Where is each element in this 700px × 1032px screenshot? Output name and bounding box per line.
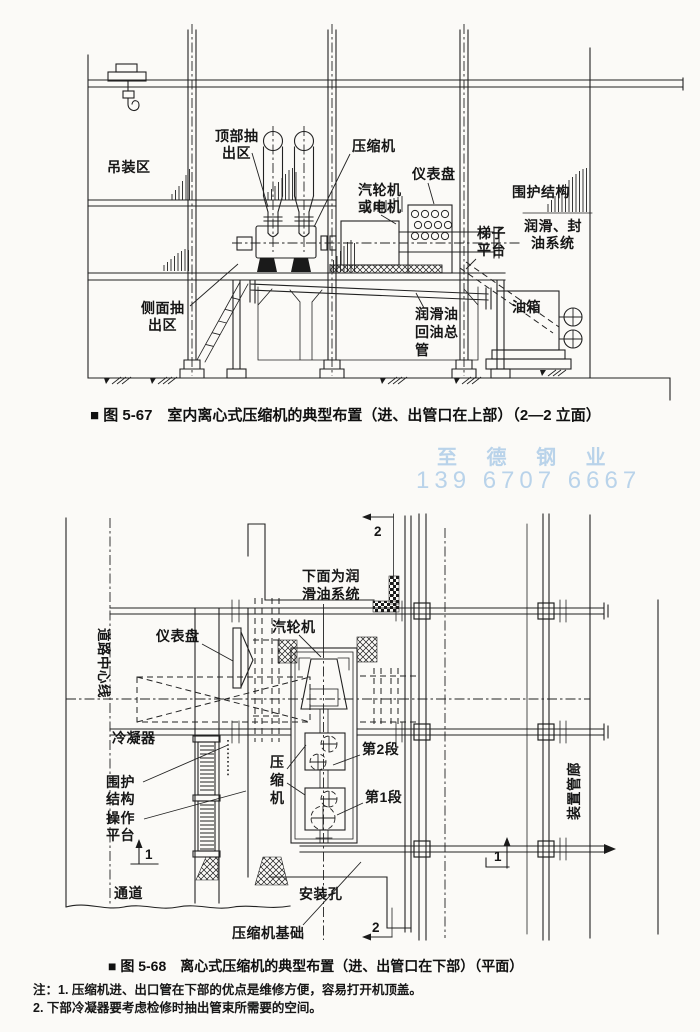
label-stage-1: 第1段 [365,789,402,805]
label-condenser: 冷凝器 [112,730,156,746]
column [320,24,344,378]
suction-nozzle [264,126,283,252]
label-operating-platform: 操作 [106,810,135,826]
label-lube-seal-system: 油系统 [531,235,575,251]
note-line-2: 2. 下部冷凝器要考虑检修时抽出管束所需要的空间。 [33,997,322,1016]
label-stage-2: 第2段 [362,741,399,757]
label-side-extraction: 侧面抽 [141,300,185,316]
instrument-panel-plan [233,628,253,688]
label-pipe-rack: 装置管廊 [566,762,582,821]
label-hoisting-area: 吊装区 [107,159,151,175]
label-top-extraction: 顶部抽 [215,128,259,144]
pedestal [330,265,442,273]
column [180,24,204,378]
label-enclosure: 结构 [106,791,135,807]
ground-hatch [104,370,566,384]
label-compressor: 机 [270,790,285,806]
watermark-company: 至 德 钢 业 [437,441,618,470]
label-lube-system-below: 滑油系统 [302,586,360,602]
label-compressor: 缩 [270,772,285,788]
label-passage: 通道 [114,885,143,901]
label-lube-system-below: 下面为润 [302,568,360,584]
label-steam-turbine: 汽轮机 [272,619,316,635]
label-turbine-or-motor: 或电机 [358,199,402,215]
scanned-book-page: 吊装区 顶部抽 出区 压缩机 汽轮机 或电机 仪表盘 围护结构 润滑、封 油系统… [0,0,700,1032]
figure-5-68-drawing: 2 [0,510,700,960]
label-ladder-platform: 梯子 [477,225,506,241]
label-oil-return: 回油总 [415,324,459,340]
condenser-box [137,677,310,722]
watermark-phone: 139 6707 6667 [416,467,641,495]
note-line-1: 注：1. 压缩机进、出口管在下部的优点是维修方便，容易打开机顶盖。 [33,979,422,998]
wavy-break-line [66,905,290,908]
structural-grid [66,514,658,940]
label-ladder-platform: 平台 [477,242,506,258]
label-enclosure: 围护 [106,774,135,790]
label-side-extraction: 出区 [148,317,177,333]
label-top-extraction: 出区 [222,145,251,161]
turbine-plan [301,659,347,709]
label-compressor: 压缩机 [352,138,396,154]
section-marker-1-left: 1 [131,839,158,864]
label-installation-hole: 安装孔 [299,886,343,902]
label-compressor-foundation: 压缩机基础 [232,925,305,941]
label-operating-platform: 平台 [106,827,135,843]
label-oil-return: 管 [415,342,430,358]
suction-nozzle [295,126,314,252]
figure-5-68-caption: ■ 图 5-68 离心式压缩机的典型布置（进、出管口在下部）（平面） [108,956,523,976]
label-lube-seal-system: 润滑、封 [524,218,582,234]
svg-text:2: 2 [374,524,382,539]
stage-1-box [305,788,345,830]
label-instrument-panel: 仪表盘 [411,166,456,182]
svg-text:1: 1 [494,849,502,864]
label-enclosure: 围护结构 [512,184,570,200]
label-oil-tank: 油箱 [512,299,541,315]
label-compressor: 压 [270,754,285,770]
label-instrument-panel: 仪表盘 [155,628,200,644]
figure-5-67-drawing: 吊装区 顶部抽 出区 压缩机 汽轮机 或电机 仪表盘 围护结构 润滑、封 油系统… [0,0,700,440]
svg-text:2: 2 [372,920,380,935]
compressor-body [256,226,316,272]
svg-text:1: 1 [145,847,153,862]
oil-return-pipe [250,280,491,309]
label-oil-return: 润滑油 [415,306,459,322]
instrument-panel [408,205,452,273]
label-turbine-or-motor: 汽轮机 [358,182,402,198]
stage-2-box [305,733,345,770]
beam-arrow [604,844,616,854]
label-road-centerline: 道路中心线 [96,628,112,698]
figure-5-67-caption: ■ 图 5-67 室内离心式压缩机的典型布置（进、出管口在上部）（2—2 立面） [90,404,601,425]
